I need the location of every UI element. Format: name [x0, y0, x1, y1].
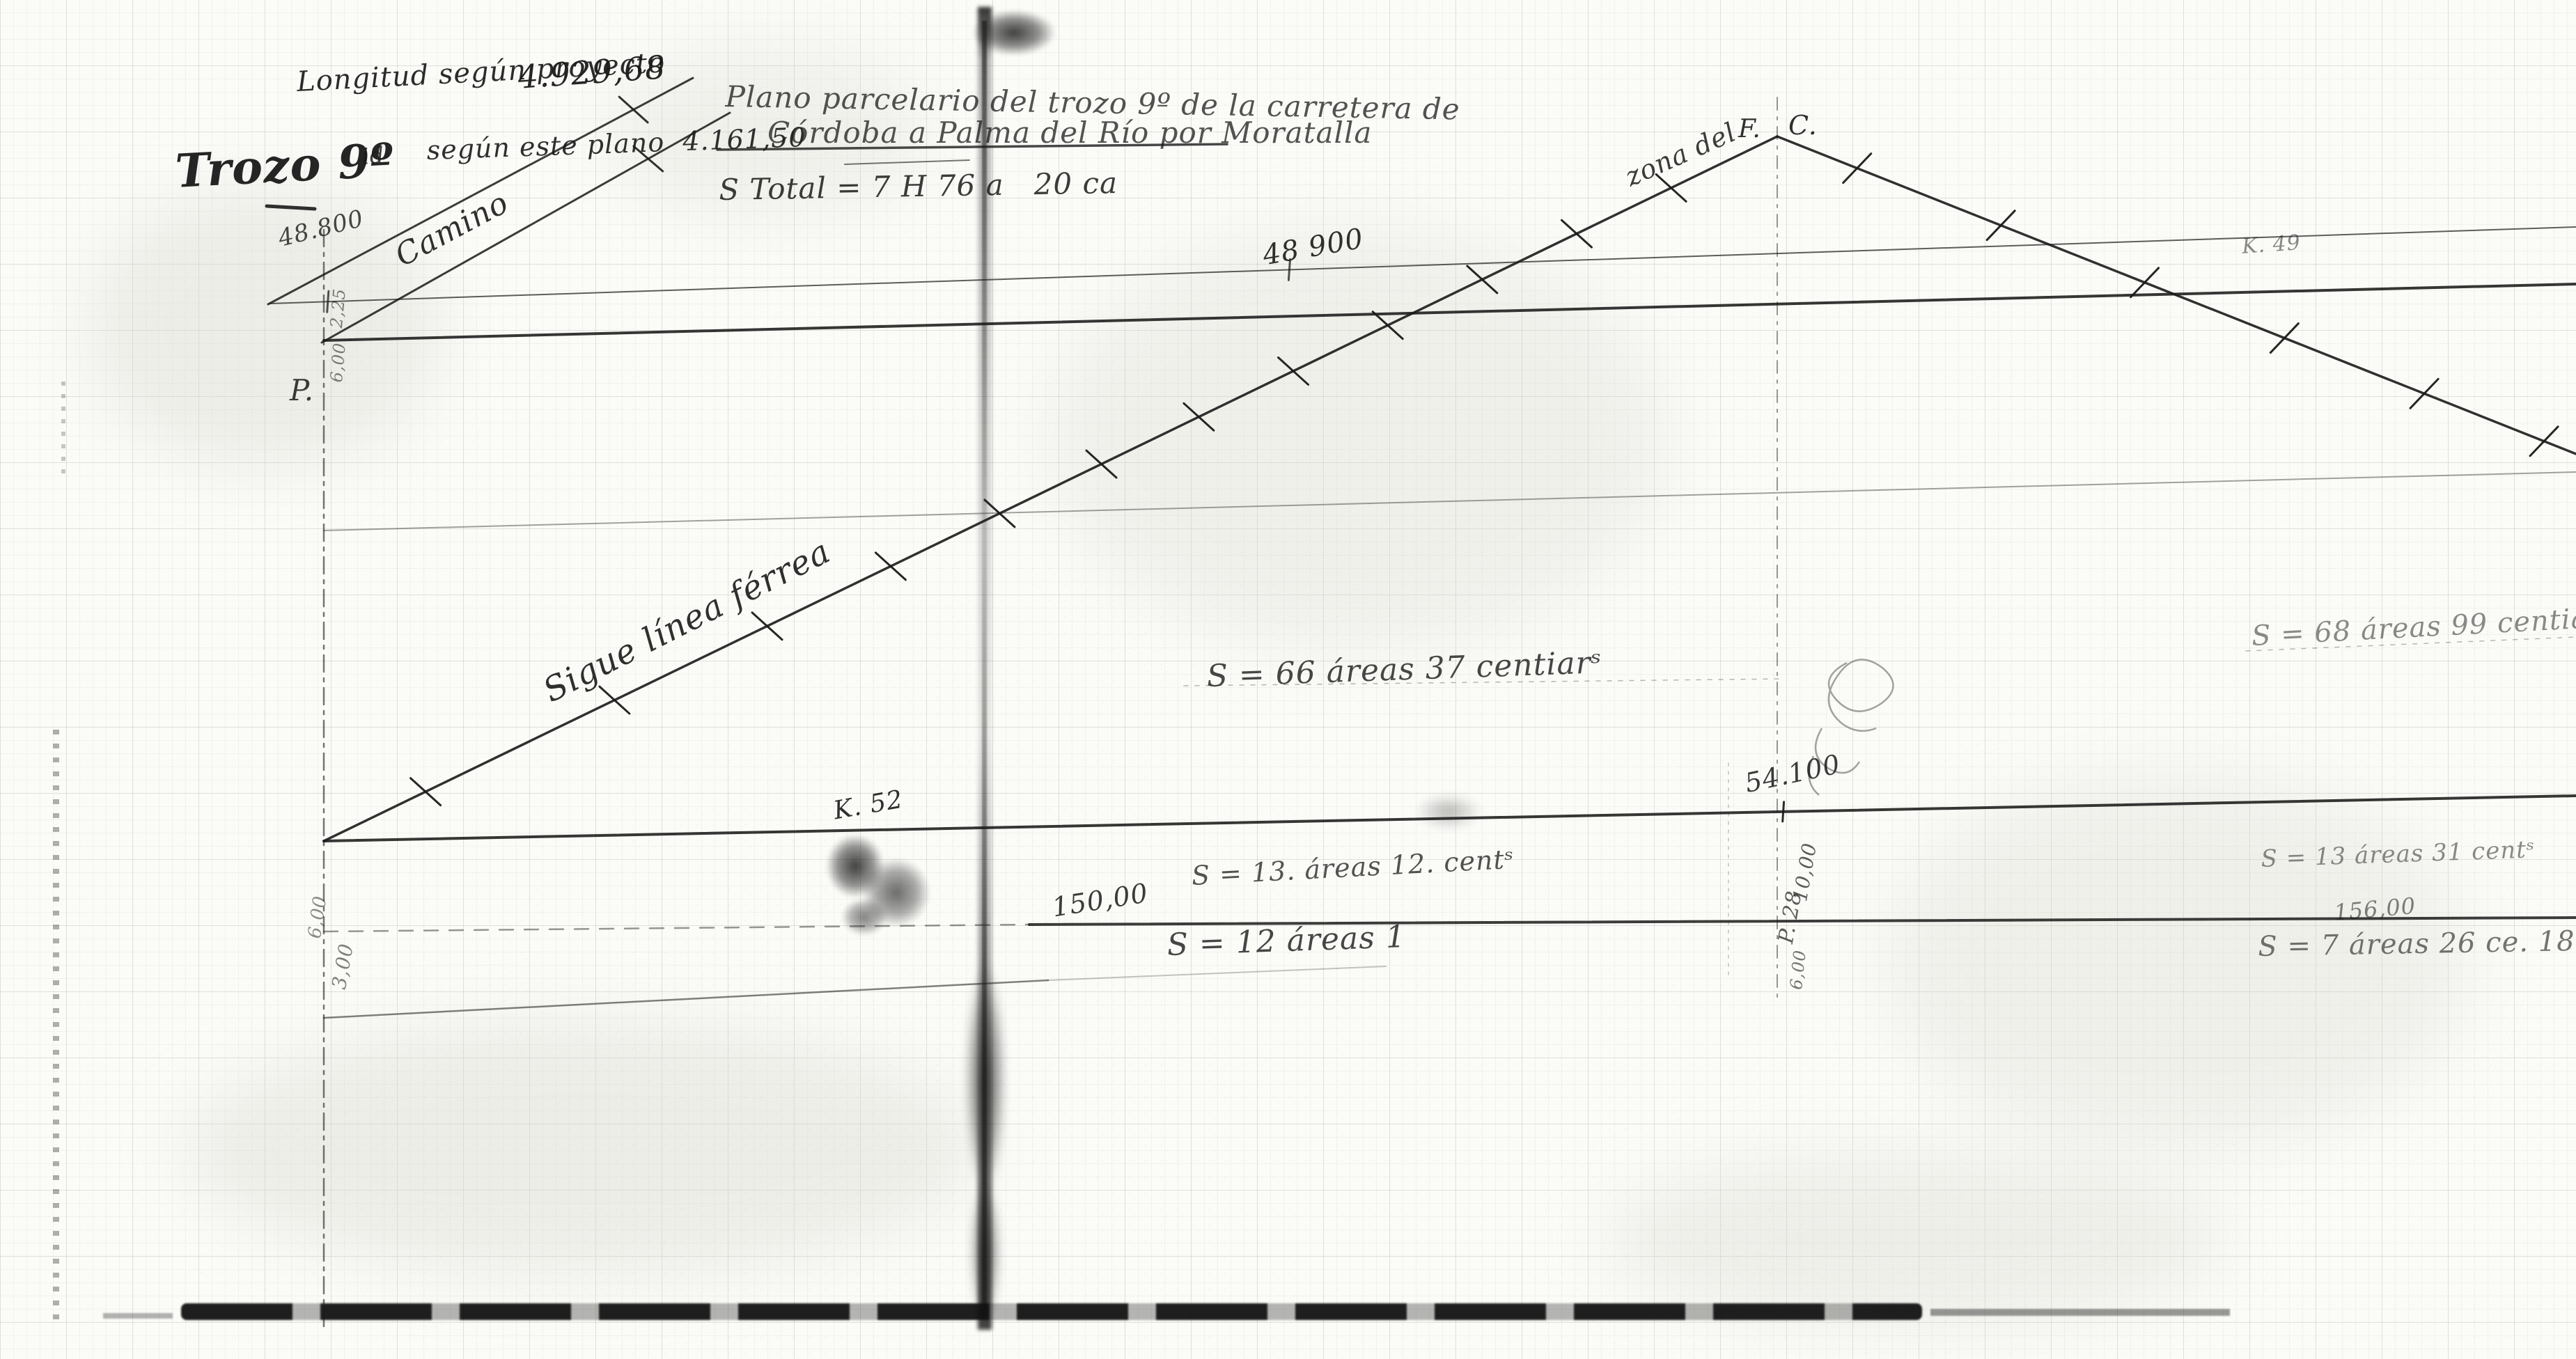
title-line2: Córdoba a Palma del Río por Moratalla [767, 117, 1372, 149]
railway-descending-tick [2131, 268, 2159, 297]
boundary-12-left [324, 980, 1048, 1018]
railway-ascending-tick [1086, 450, 1116, 478]
railway-ascending-tick [752, 613, 782, 640]
mid-faint-line [324, 472, 2576, 531]
railway-ascending-tick [1467, 266, 1497, 293]
railway-ascending-tick [1373, 312, 1403, 339]
camino-upper-edge-tick [619, 97, 648, 123]
trozo-underline [267, 206, 315, 209]
lower-dark-line [324, 796, 2576, 841]
railway-ascending [324, 136, 1777, 841]
upper-dark-line [324, 284, 2576, 340]
railway-descending-tick [2270, 324, 2298, 353]
railway-ascending-tick [411, 778, 441, 806]
camino-upper-edge [268, 78, 693, 304]
scanned-plan-sheet: Longitud según proyecto4.929,68idsegún e… [0, 0, 2576, 1359]
railway-ascending-tick [875, 553, 905, 580]
railway-ascending-tick [1561, 220, 1591, 247]
boundary-150-left [324, 925, 1029, 932]
c-point: C. [1788, 111, 1818, 141]
boundary-12-cont [1048, 966, 1386, 980]
railway-ascending-tick [1184, 403, 1214, 430]
total-area: S Total = 7 H 76 a 20 ca [719, 167, 1118, 206]
railway-descending [1777, 136, 2576, 454]
railway-descending-tick [2410, 379, 2438, 408]
km-post-49: K. 49 [2241, 231, 2302, 258]
area-7-26: S = 7 áreas 26 ce. 18 ca [2258, 925, 2576, 962]
f-point: F. [1738, 116, 1761, 143]
p-point: P. [290, 375, 314, 407]
offset-6-00-right: 6,00 [1787, 949, 1809, 991]
railway-descending-tick [1843, 154, 1871, 183]
railway-ascending-tick [600, 686, 630, 714]
lower-dark-line-tick [1783, 802, 1784, 822]
total-area-overline [845, 160, 969, 164]
railway-ascending-tick [1279, 358, 1309, 385]
section-heading: Trozo 9º [174, 135, 396, 197]
railway-descending-tick [2530, 427, 2558, 456]
offset-2-25: 2,25 [327, 288, 349, 329]
offset-6-00-left: 6,00 [327, 342, 349, 384]
railway-descending-tick [1987, 211, 2015, 240]
